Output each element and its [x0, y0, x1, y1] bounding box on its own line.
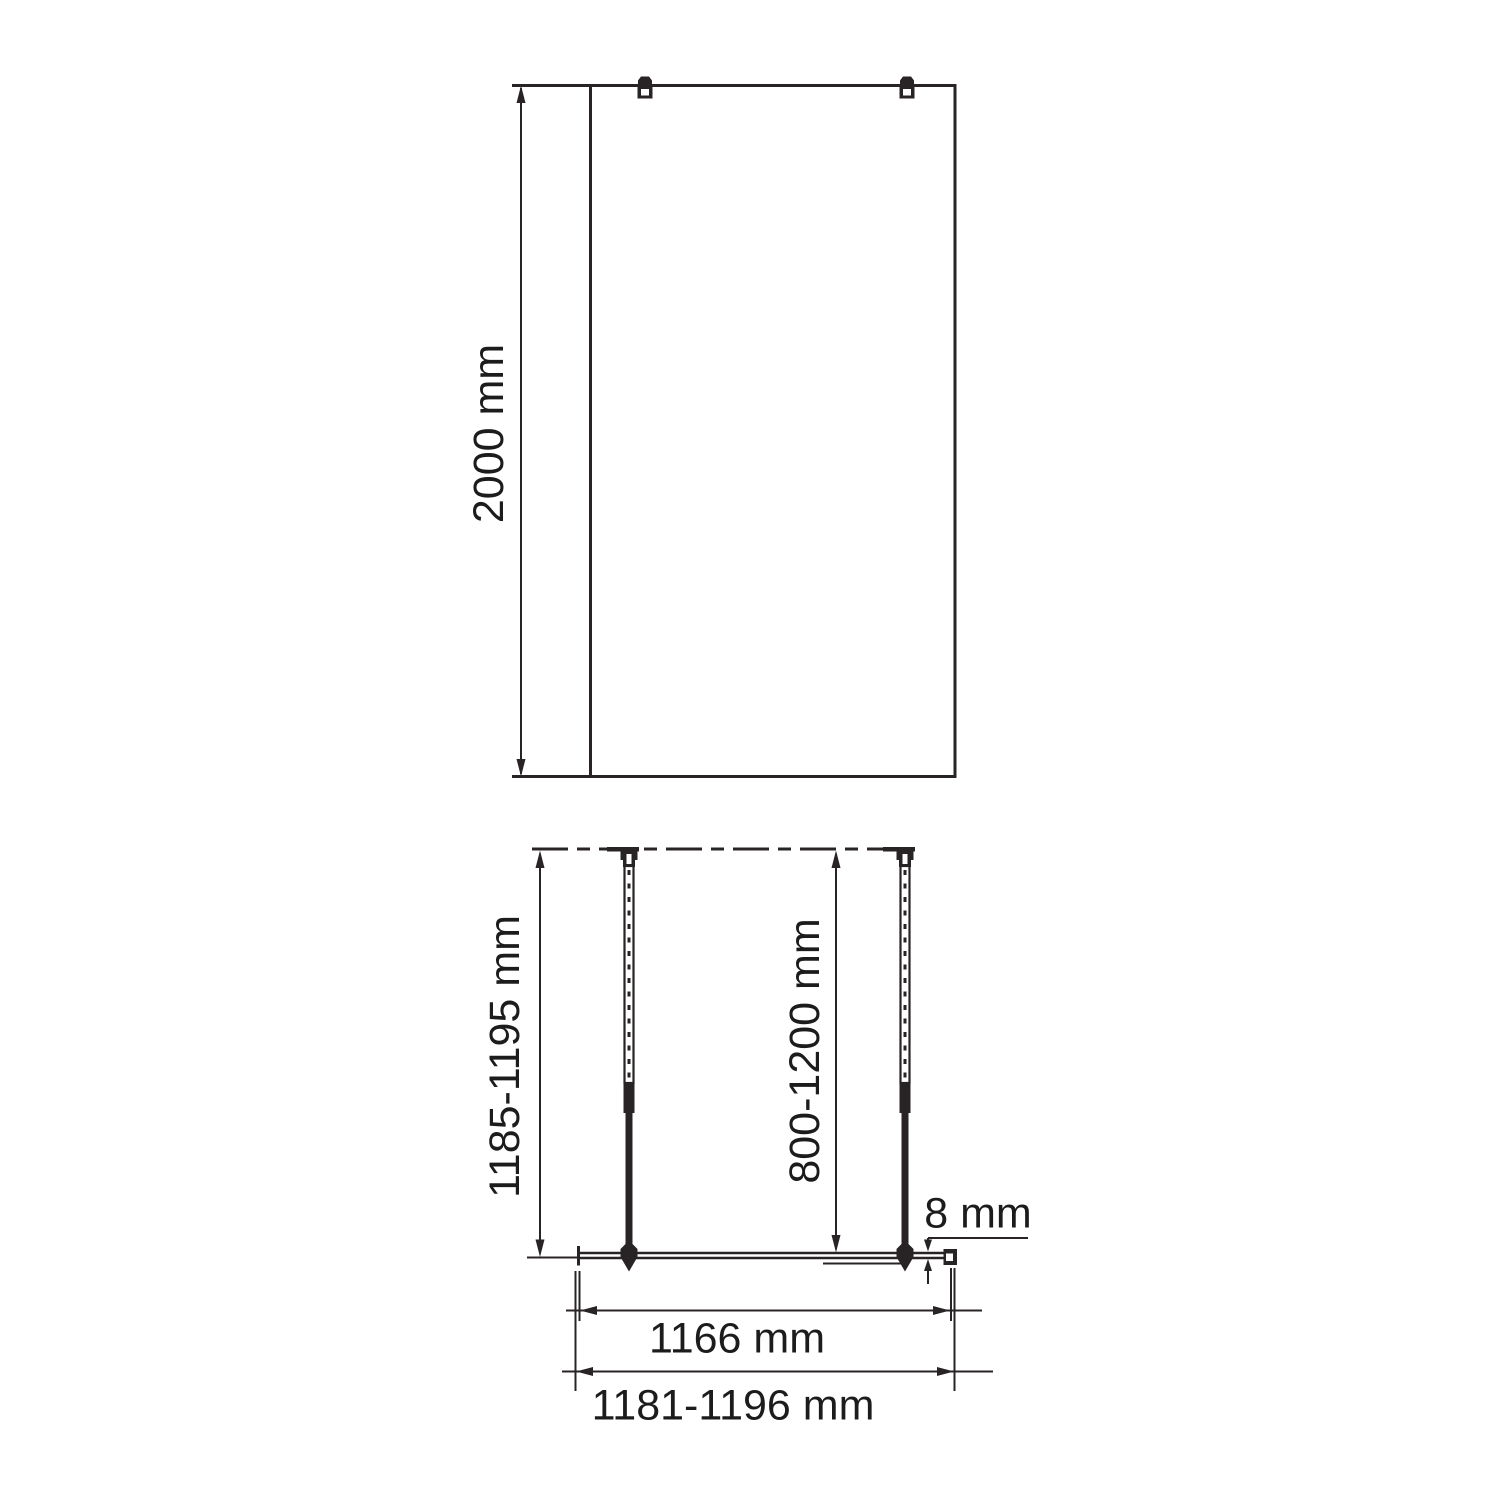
overall-width-label: 1181-1196 mm [592, 1382, 875, 1430]
front-view: 2000 mm [465, 77, 955, 777]
dimension-height: 2000 mm [465, 86, 526, 777]
dimension-panel-depth: 1185-1195 mm [481, 851, 545, 1258]
arrow-right-icon [937, 1367, 954, 1376]
clamp-knob [638, 77, 652, 87]
glass-panel-outline [591, 86, 956, 777]
arrow-up-icon [517, 86, 526, 104]
support-rod-left [607, 847, 639, 1272]
arrow-down-icon [536, 1240, 545, 1258]
plan-view: 1185-1195 mm 800-1200 mm 8 mm 1 [481, 847, 1032, 1430]
arrow-down-icon [924, 1240, 932, 1252]
arrow-up-icon [832, 851, 841, 869]
support-rod-right [883, 847, 915, 1272]
dimension-overall-width: 1181-1196 mm [562, 1367, 993, 1430]
rod-collar [900, 1082, 911, 1113]
glass-thickness-label: 8 mm [924, 1190, 1032, 1238]
clamp-slot [903, 89, 911, 96]
rod-head-slot [903, 854, 908, 864]
rod-inner-tube [626, 1113, 633, 1254]
arrow-down-icon [832, 1235, 841, 1253]
support-bar-range-label: 800-1200 mm [781, 918, 829, 1183]
dimension-glass-thickness: 8 mm [924, 1190, 1032, 1285]
shower-screen-dimension-drawing: 2000 mm [0, 0, 1500, 1500]
height-dimension-label: 2000 mm [465, 344, 513, 523]
dimension-glass-width: 1166 mm [566, 1306, 982, 1363]
glass-width-label: 1166 mm [649, 1315, 825, 1363]
rod-collar [624, 1082, 635, 1113]
panel-depth-label: 1185-1195 mm [481, 915, 529, 1198]
arrow-up-icon [924, 1259, 932, 1271]
technical-drawing-page: 2000 mm [0, 0, 1500, 1500]
dimension-support-bar-range: 800-1200 mm [781, 851, 841, 1253]
arrow-left-icon [576, 1367, 593, 1376]
rod-wall-plate [883, 847, 915, 852]
arrow-right-icon [933, 1306, 950, 1315]
wall-clamp-left-icon [638, 77, 653, 99]
rod-head-slot [627, 854, 632, 864]
rod-wall-plate [607, 847, 639, 852]
wall-profile-slot [946, 1254, 953, 1262]
clamp-knob [900, 77, 914, 87]
glass-panel-plan [527, 1246, 957, 1266]
arrow-left-icon [580, 1306, 597, 1315]
clamp-slot [641, 89, 649, 96]
rod-inner-tube [902, 1113, 909, 1254]
arrow-up-icon [536, 851, 545, 869]
wall-clamp-right-icon [900, 77, 915, 99]
arrow-down-icon [517, 759, 526, 777]
